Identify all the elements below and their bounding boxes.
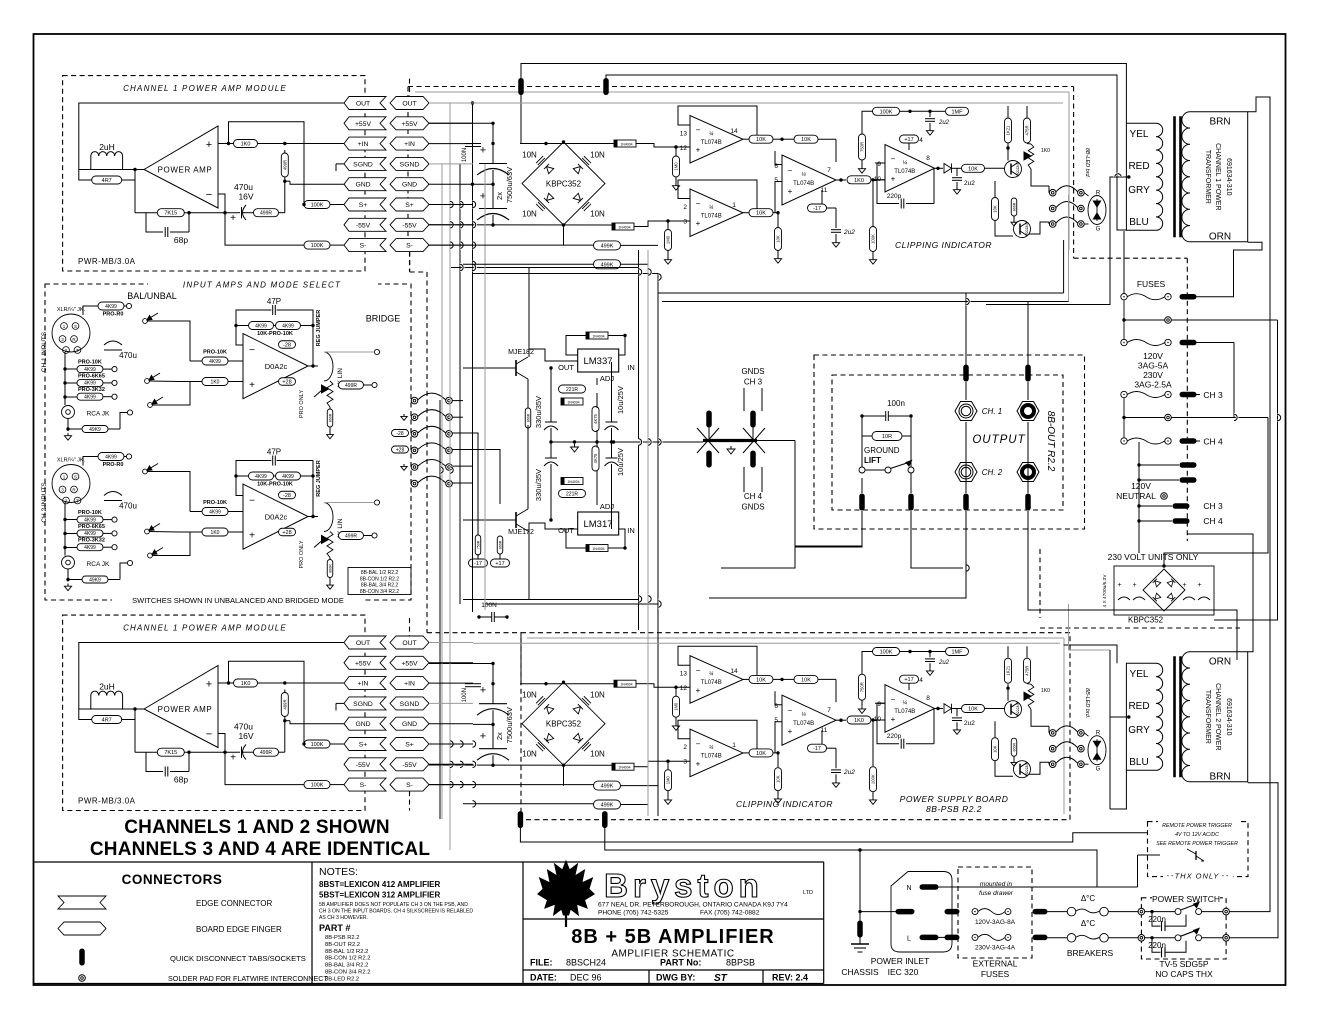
svg-text:−: −: [206, 189, 212, 201]
svg-text:8B-OUT R2.2: 8B-OUT R2.2: [1045, 411, 1056, 472]
svg-text:120V: 120V: [1131, 481, 1151, 491]
svg-text:AS CH 3 HOWEVER.: AS CH 3 HOWEVER.: [319, 915, 368, 921]
svg-text:13: 13: [680, 131, 688, 138]
svg-text:REV: 2.4: REV: 2.4: [772, 973, 808, 983]
svg-text:REMOTE POWER TRIGGER: REMOTE POWER TRIGGER: [1162, 823, 1232, 829]
svg-text:POWER AMP: POWER AMP: [158, 705, 213, 714]
svg-text:+: +: [891, 175, 896, 184]
svg-text:-55V: -55V: [402, 762, 417, 769]
svg-text:RED: RED: [1128, 161, 1149, 172]
svg-text:2N5550: 2N5550: [1016, 162, 1021, 177]
svg-text:TL074B: TL074B: [793, 721, 814, 727]
svg-text:FUSES: FUSES: [1137, 279, 1166, 289]
svg-text:5B AMPLIFIER DOES NOT POPULATE: 5B AMPLIFIER DOES NOT POPULATE CH 3 ON T…: [319, 902, 468, 908]
svg-text:10N: 10N: [522, 151, 537, 160]
svg-text:S-: S-: [360, 243, 367, 250]
svg-text:10N: 10N: [590, 210, 605, 219]
svg-text:+: +: [206, 679, 212, 691]
svg-text:221R: 221R: [566, 491, 578, 497]
svg-text:10K: 10K: [756, 677, 766, 683]
svg-text:CHANNEL 1 POWER AMP MODULE: CHANNEL 1 POWER AMP MODULE: [123, 624, 287, 633]
svg-text:750R: 750R: [476, 540, 480, 549]
svg-text:1K0: 1K0: [241, 681, 251, 687]
svg-text:220p: 220p: [887, 733, 902, 740]
svg-text:RED: RED: [1128, 701, 1149, 712]
svg-text:CH 3: CH 3: [1203, 390, 1223, 400]
svg-text:TL074B: TL074B: [701, 680, 722, 686]
svg-text:+: +: [696, 219, 701, 228]
svg-text:47P: 47P: [267, 297, 281, 306]
svg-text:-55V: -55V: [356, 762, 371, 769]
svg-text:2u2: 2u2: [938, 120, 950, 126]
svg-text:ST: ST: [714, 973, 728, 984]
svg-text:7500u/63V: 7500u/63V: [505, 167, 514, 203]
svg-text:PHONE (705) 742-5325: PHONE (705) 742-5325: [598, 910, 669, 917]
svg-text:8B-BAL 1/2 R2.2: 8B-BAL 1/2 R2.2: [325, 949, 368, 955]
svg-text:+: +: [230, 753, 236, 764]
svg-text:L: L: [907, 936, 911, 943]
svg-text:PRO ONLY: PRO ONLY: [299, 390, 305, 418]
svg-text:D0A2c: D0A2c: [265, 362, 288, 371]
svg-text:1N4004: 1N4004: [620, 142, 632, 146]
svg-text:POWER AMP: POWER AMP: [158, 166, 213, 175]
svg-text:120V-3AG-8A: 120V-3AG-8A: [975, 919, 1016, 926]
svg-text:220n: 220n: [1148, 915, 1166, 924]
svg-text:OUT: OUT: [356, 101, 370, 108]
svg-text:10K: 10K: [968, 706, 978, 712]
svg-text:5BST=LEXICON 312 AMPLIFIER: 5BST=LEXICON 312 AMPLIFIER: [319, 891, 441, 900]
svg-text:Δ°C: Δ°C: [1081, 894, 1096, 903]
svg-text:PRO-6K65: PRO-6K65: [78, 524, 105, 530]
svg-text:PRO-10K: PRO-10K: [78, 360, 102, 366]
svg-text:+55V: +55V: [401, 121, 418, 128]
svg-text:SGND: SGND: [353, 161, 373, 168]
svg-text:8B-PSB R2.2: 8B-PSB R2.2: [325, 935, 359, 941]
svg-text:7K15: 7K15: [164, 750, 177, 756]
svg-text:FAX (705) 742-0882: FAX (705) 742-0882: [700, 910, 760, 917]
svg-text:PWR-MB/3.0A: PWR-MB/3.0A: [78, 257, 136, 266]
svg-text:4K99: 4K99: [209, 359, 221, 365]
svg-text:1K0: 1K0: [854, 718, 864, 724]
svg-text:S: S: [74, 474, 77, 479]
svg-text:1K21: 1K21: [1006, 125, 1011, 135]
svg-text:+: +: [1182, 582, 1186, 589]
svg-text:4K99: 4K99: [282, 474, 294, 480]
svg-text:2u2: 2u2: [843, 229, 855, 236]
svg-text:+: +: [206, 139, 212, 151]
svg-text:1N4004: 1N4004: [592, 547, 604, 551]
svg-text:CH. 1: CH. 1: [982, 407, 1002, 416]
svg-text:GND: GND: [402, 721, 417, 728]
svg-text:POWER SWITCH: POWER SWITCH: [1152, 894, 1220, 904]
svg-text:PRO-10K: PRO-10K: [203, 350, 227, 356]
svg-text:CH 3 ON THE INPUT BOARDS. CH 4: CH 3 ON THE INPUT BOARDS. CH 4 SILKSCREE…: [319, 909, 473, 915]
svg-text:G: G: [1096, 227, 1101, 233]
svg-text:10u/25V: 10u/25V: [616, 386, 625, 414]
svg-text:−: −: [249, 345, 255, 356]
svg-text:2N5550: 2N5550: [1016, 702, 1021, 717]
svg-text:499R: 499R: [345, 383, 357, 389]
svg-text:220n: 220n: [1148, 941, 1166, 950]
svg-text:+: +: [480, 145, 486, 157]
svg-text:10N: 10N: [590, 750, 605, 759]
svg-text:8B-LED R2.2: 8B-LED R2.2: [325, 976, 359, 982]
svg-text:8BPSB: 8BPSB: [726, 958, 755, 968]
svg-text:100N: 100N: [481, 602, 497, 609]
svg-text:XLR/¼" JK.: XLR/¼" JK.: [57, 458, 86, 464]
svg-text:9: 9: [877, 161, 881, 168]
svg-text:¼: ¼: [903, 160, 908, 166]
svg-text:¼: ¼: [709, 205, 714, 211]
svg-text:68p: 68p: [174, 235, 188, 245]
svg-text:−: −: [891, 155, 896, 164]
svg-text:470u: 470u: [119, 351, 137, 360]
svg-text:S: S: [74, 324, 77, 329]
svg-text:+: +: [696, 686, 701, 695]
svg-text:GRY: GRY: [1128, 725, 1150, 736]
svg-text:SGND: SGND: [353, 701, 373, 708]
svg-text:EXTERNAL: EXTERNAL: [973, 959, 1018, 969]
svg-text:10K: 10K: [968, 166, 978, 172]
svg-text:100K: 100K: [871, 234, 876, 244]
svg-text:CH 3: CH 3: [1203, 501, 1223, 511]
svg-text:10N: 10N: [522, 210, 537, 219]
svg-text:2u2: 2u2: [843, 769, 855, 776]
svg-text:IN: IN: [627, 363, 635, 372]
svg-text:475R: 475R: [1025, 666, 1030, 676]
svg-text:691634-310: 691634-310: [1225, 158, 1232, 195]
svg-text:+28: +28: [396, 447, 405, 453]
svg-text:SEE REMOTE POWER TRIGGER: SEE REMOTE POWER TRIGGER: [1156, 841, 1238, 847]
svg-text:1M0: 1M0: [666, 235, 671, 244]
svg-text:−: −: [249, 496, 255, 507]
svg-text:100N: 100N: [462, 148, 468, 162]
svg-text:BRN: BRN: [1209, 116, 1230, 127]
svg-text:¼: ¼: [801, 712, 806, 718]
svg-text:- -: - -: [1222, 873, 1229, 880]
svg-text:120V: 120V: [1143, 351, 1163, 361]
svg-text:16V: 16V: [238, 731, 253, 741]
svg-text:SOLDER PAD FOR FLATWIRE INTERC: SOLDER PAD FOR FLATWIRE INTERCONNECT: [168, 974, 328, 983]
svg-text:CHANNEL 1 POWER AMP MODULE: CHANNEL 1 POWER AMP MODULE: [123, 84, 287, 93]
svg-text:−: −: [891, 695, 896, 704]
svg-text:10N: 10N: [522, 750, 537, 759]
svg-text:10K: 10K: [801, 677, 811, 683]
svg-text:330u/35V: 330u/35V: [534, 396, 543, 428]
svg-text:PRO-3K32: PRO-3K32: [78, 538, 105, 544]
svg-text:12: 12: [680, 685, 688, 692]
svg-text:+: +: [788, 727, 793, 736]
svg-text:1N4004: 1N4004: [567, 400, 579, 404]
svg-text:-17: -17: [474, 561, 482, 567]
svg-text:ORN: ORN: [1209, 231, 1231, 242]
svg-text:LTD: LTD: [803, 890, 813, 896]
svg-text:866R: 866R: [1012, 743, 1016, 752]
svg-text:GRY: GRY: [1128, 185, 1150, 196]
svg-text:2u2: 2u2: [938, 660, 950, 666]
svg-text:4K99: 4K99: [84, 381, 96, 387]
svg-text:CH 4: CH 4: [1203, 516, 1223, 526]
svg-text:+17: +17: [904, 677, 913, 683]
svg-text:100K: 100K: [311, 243, 324, 249]
svg-text:CLIPPING INDICATOR: CLIPPING INDICATOR: [736, 799, 833, 809]
svg-text:¼: ¼: [709, 672, 714, 678]
svg-text:750R: 750R: [860, 142, 865, 152]
svg-text:THX ONLY: THX ONLY: [1175, 872, 1220, 881]
svg-text:−: −: [206, 729, 212, 741]
svg-text:S+: S+: [405, 742, 414, 749]
svg-text:GND: GND: [355, 182, 370, 189]
svg-text:TL074B: TL074B: [894, 709, 915, 715]
svg-text:470u: 470u: [119, 502, 137, 511]
svg-text:-17: -17: [813, 746, 821, 752]
svg-text:100K: 100K: [880, 649, 893, 655]
svg-text:S+: S+: [359, 742, 368, 749]
svg-text:¼: ¼: [801, 172, 806, 178]
svg-text:2x: 2x: [495, 732, 504, 740]
svg-text:10u/25V: 10u/25V: [616, 448, 625, 476]
svg-text:-28: -28: [283, 493, 291, 499]
svg-text:+55V: +55V: [401, 660, 418, 667]
svg-text:EDGE CONNECTOR: EDGE CONNECTOR: [196, 899, 273, 908]
svg-text:8B-OUT R2.2: 8B-OUT R2.2: [325, 942, 360, 948]
svg-text:ADJ: ADJ: [600, 502, 614, 511]
svg-text:¼: ¼: [709, 131, 714, 137]
svg-text:GND: GND: [355, 721, 370, 728]
svg-text:DATE:: DATE:: [530, 973, 557, 983]
svg-text:+: +: [891, 715, 896, 724]
svg-text:2N5550: 2N5550: [1025, 762, 1030, 777]
svg-text:1K21: 1K21: [1006, 665, 1011, 675]
svg-text:866R: 866R: [328, 413, 332, 422]
svg-text:13: 13: [680, 671, 688, 678]
svg-text:100N: 100N: [462, 688, 468, 702]
svg-text:2x: 2x: [495, 192, 504, 200]
svg-text:10K: 10K: [776, 775, 781, 783]
svg-text:-17: -17: [813, 206, 821, 212]
svg-text:−: −: [788, 166, 793, 175]
svg-text:- -: - -: [1167, 873, 1174, 880]
svg-text:2: 2: [683, 744, 687, 751]
svg-text:3: 3: [683, 759, 687, 766]
svg-text:68p: 68p: [174, 775, 188, 785]
svg-text:10K: 10K: [756, 211, 766, 217]
svg-text:BLU: BLU: [1129, 217, 1148, 228]
svg-text:OUT: OUT: [402, 101, 416, 108]
svg-text:BREAKERS: BREAKERS: [1067, 948, 1114, 958]
svg-text:49K9: 49K9: [89, 427, 101, 433]
svg-text:+IN: +IN: [358, 141, 369, 148]
svg-text:4K99: 4K99: [255, 474, 267, 480]
svg-text:S+: S+: [359, 202, 368, 209]
svg-text:7500u/63V: 7500u/63V: [505, 707, 514, 743]
svg-text:−: −: [696, 739, 701, 748]
svg-text:10R: 10R: [882, 434, 892, 440]
svg-text:+: +: [1117, 582, 1121, 589]
svg-text:1N4004: 1N4004: [618, 766, 630, 770]
svg-text:¼: ¼: [903, 701, 908, 707]
svg-text:2N5550: 2N5550: [1025, 222, 1030, 237]
svg-text:1: 1: [732, 742, 736, 749]
svg-text:10K: 10K: [756, 751, 766, 757]
svg-text:R: R: [1096, 191, 1101, 197]
svg-text:220p: 220p: [887, 193, 902, 200]
svg-text:8B-LED brd.: 8B-LED brd.: [1084, 688, 1090, 718]
svg-text:LM337: LM337: [583, 356, 612, 367]
svg-text:499R: 499R: [260, 211, 272, 217]
svg-text:1K0: 1K0: [241, 141, 251, 147]
svg-text:499R: 499R: [345, 533, 357, 539]
svg-text:G: G: [1096, 767, 1101, 773]
svg-text:3AG-2.5A: 3AG-2.5A: [1134, 380, 1172, 390]
svg-text:1M0: 1M0: [666, 775, 671, 784]
svg-text:PRO-10K: PRO-10K: [78, 510, 102, 516]
svg-text:fuse drawer: fuse drawer: [979, 890, 1014, 897]
svg-text:14: 14: [730, 128, 738, 135]
svg-text:691634-310: 691634-310: [1225, 698, 1232, 735]
svg-text:YEL: YEL: [1130, 669, 1149, 680]
svg-text:1: 1: [732, 202, 736, 209]
svg-text:499K: 499K: [601, 243, 614, 249]
svg-text:CH. 2: CH. 2: [982, 468, 1003, 477]
svg-text:10N: 10N: [590, 151, 605, 160]
svg-text:8B + 5B AMPLIFIER: 8B + 5B AMPLIFIER: [571, 926, 775, 948]
svg-text:GNDS: GNDS: [741, 503, 764, 512]
svg-text:FILE:: FILE:: [530, 958, 553, 968]
svg-text:PRO-R0: PRO-R0: [103, 312, 124, 318]
svg-text:KBPC352: KBPC352: [1128, 616, 1164, 625]
svg-text:TRANSFORMER: TRANSFORMER: [1204, 150, 1211, 204]
svg-text:3: 3: [683, 219, 687, 226]
svg-text:T: T: [76, 348, 79, 353]
svg-text:10K: 10K: [993, 745, 998, 753]
svg-text:49K9: 49K9: [89, 577, 101, 583]
svg-text:100n: 100n: [887, 399, 905, 408]
svg-text:1K0: 1K0: [854, 178, 864, 184]
svg-text:YEL: YEL: [1130, 129, 1149, 140]
svg-text:-28: -28: [396, 431, 403, 437]
svg-text:4: 4: [919, 137, 923, 144]
svg-text:+IN: +IN: [358, 681, 369, 688]
svg-text:+IN: +IN: [404, 681, 415, 688]
svg-text:KBPC352: KBPC352: [546, 720, 582, 729]
svg-text:1N4004: 1N4004: [618, 225, 630, 229]
svg-text:866R: 866R: [498, 540, 502, 549]
svg-text:866R: 866R: [328, 564, 332, 573]
svg-text:S-: S-: [360, 782, 367, 789]
svg-text:PRO-R0: PRO-R0: [103, 462, 124, 468]
svg-text:BLU: BLU: [1129, 757, 1148, 768]
svg-text:4K99: 4K99: [282, 323, 294, 329]
svg-text:8B-BAL 3/4 R2.2: 8B-BAL 3/4 R2.2: [325, 963, 368, 969]
svg-text:1K0: 1K0: [211, 530, 220, 536]
svg-text:PRO-6K65: PRO-6K65: [78, 373, 105, 379]
svg-text:+: +: [249, 380, 255, 391]
svg-text:BOARD EDGE FINGER: BOARD EDGE FINGER: [196, 925, 282, 934]
svg-text:8B-CON 1/2 R2.2: 8B-CON 1/2 R2.2: [325, 956, 370, 962]
svg-text:1N4004: 1N4004: [592, 334, 604, 338]
svg-text:+: +: [480, 685, 486, 697]
svg-text:2: 2: [683, 204, 687, 211]
svg-text:499R: 499R: [282, 160, 287, 170]
svg-text:4R7: 4R7: [102, 717, 112, 723]
svg-text:IEC 320: IEC 320: [888, 967, 919, 977]
svg-text:PRO-10K: PRO-10K: [203, 500, 227, 506]
svg-text:866R: 866R: [526, 413, 530, 422]
svg-text:470u: 470u: [234, 722, 253, 732]
svg-text:NOTES:: NOTES:: [319, 866, 358, 878]
svg-text:8B-LED brd.: 8B-LED brd.: [1084, 148, 1090, 178]
svg-text:CH 4: CH 4: [744, 492, 763, 501]
svg-text:4K99: 4K99: [105, 454, 117, 460]
svg-text:16V: 16V: [238, 192, 253, 202]
svg-text:100K: 100K: [311, 202, 324, 208]
svg-text:1N4004: 1N4004: [567, 480, 579, 484]
svg-text:PART No:: PART No:: [660, 958, 701, 968]
svg-text:8BSCH24: 8BSCH24: [566, 958, 606, 968]
svg-text:SGND: SGND: [400, 701, 420, 708]
svg-text:100K: 100K: [311, 783, 324, 789]
svg-text:REG JUMPER: REG JUMPER: [316, 310, 322, 346]
svg-text:9: 9: [877, 701, 881, 708]
svg-text:4K99: 4K99: [84, 545, 96, 551]
svg-text:4K99: 4K99: [105, 304, 117, 310]
svg-text:4R7: 4R7: [102, 178, 112, 184]
svg-text:470u: 470u: [234, 182, 253, 192]
svg-text:CHANNEL 2 POWER: CHANNEL 2 POWER: [1214, 683, 1221, 750]
svg-text:PWR-MB/3.0A: PWR-MB/3.0A: [78, 797, 136, 806]
svg-text:4K99: 4K99: [209, 509, 221, 515]
svg-text:7K15: 7K15: [164, 211, 177, 217]
svg-text:+: +: [696, 759, 701, 768]
svg-text:OUT: OUT: [402, 640, 416, 647]
svg-text:SWITCHES SHOWN IN UNBALANCED A: SWITCHES SHOWN IN UNBALANCED AND BRIDGED…: [132, 596, 344, 605]
svg-text:499R: 499R: [260, 750, 272, 756]
svg-text:100K: 100K: [880, 109, 893, 115]
svg-text:2uH: 2uH: [99, 142, 115, 152]
svg-text:2u2: 2u2: [964, 720, 975, 727]
svg-text:8B-CON 3/4 R2.2: 8B-CON 3/4 R2.2: [325, 970, 370, 976]
svg-text:+55V: +55V: [355, 121, 372, 128]
svg-text:+: +: [230, 213, 236, 224]
svg-text:CH 4: CH 4: [1203, 437, 1223, 447]
svg-text:8B-CON 1/2 R2.2: 8B-CON 1/2 R2.2: [360, 576, 399, 582]
svg-text:R: R: [1096, 731, 1101, 737]
svg-text:LM317: LM317: [583, 519, 612, 530]
svg-text:CH 3: CH 3: [744, 378, 763, 387]
svg-text:7: 7: [827, 167, 831, 174]
svg-text:CH 1 INPUTS: CH 1 INPUTS: [41, 331, 48, 372]
svg-text:CHANNEL 1 POWER: CHANNEL 1 POWER: [1214, 143, 1221, 210]
svg-text:MJE172: MJE172: [508, 529, 534, 536]
svg-text:1M0: 1M0: [674, 702, 679, 711]
svg-text:8B-PSB R2.2: 8B-PSB R2.2: [926, 804, 982, 814]
svg-text:CHANNELS 1 AND 2 SHOWN: CHANNELS 1 AND 2 SHOWN: [124, 817, 390, 838]
svg-text:T: T: [76, 498, 79, 503]
svg-text:2uH: 2uH: [99, 682, 115, 692]
svg-text:+IN: +IN: [404, 141, 415, 148]
svg-text:BAL/UNBAL: BAL/UNBAL: [127, 291, 177, 301]
svg-text:3AG-5A: 3AG-5A: [1138, 361, 1169, 371]
svg-text:+: +: [1197, 582, 1201, 589]
svg-text:TL074B: TL074B: [894, 169, 915, 175]
svg-text:-28: -28: [283, 342, 291, 348]
svg-text:10K: 10K: [801, 137, 811, 143]
svg-text:KBPC352: KBPC352: [546, 180, 582, 189]
svg-text:+: +: [480, 731, 486, 743]
svg-text:10K-PRO-10K: 10K-PRO-10K: [257, 482, 293, 488]
svg-text:QUICK DISCONNECT TABS/SOCKETS: QUICK DISCONNECT TABS/SOCKETS: [170, 954, 306, 963]
